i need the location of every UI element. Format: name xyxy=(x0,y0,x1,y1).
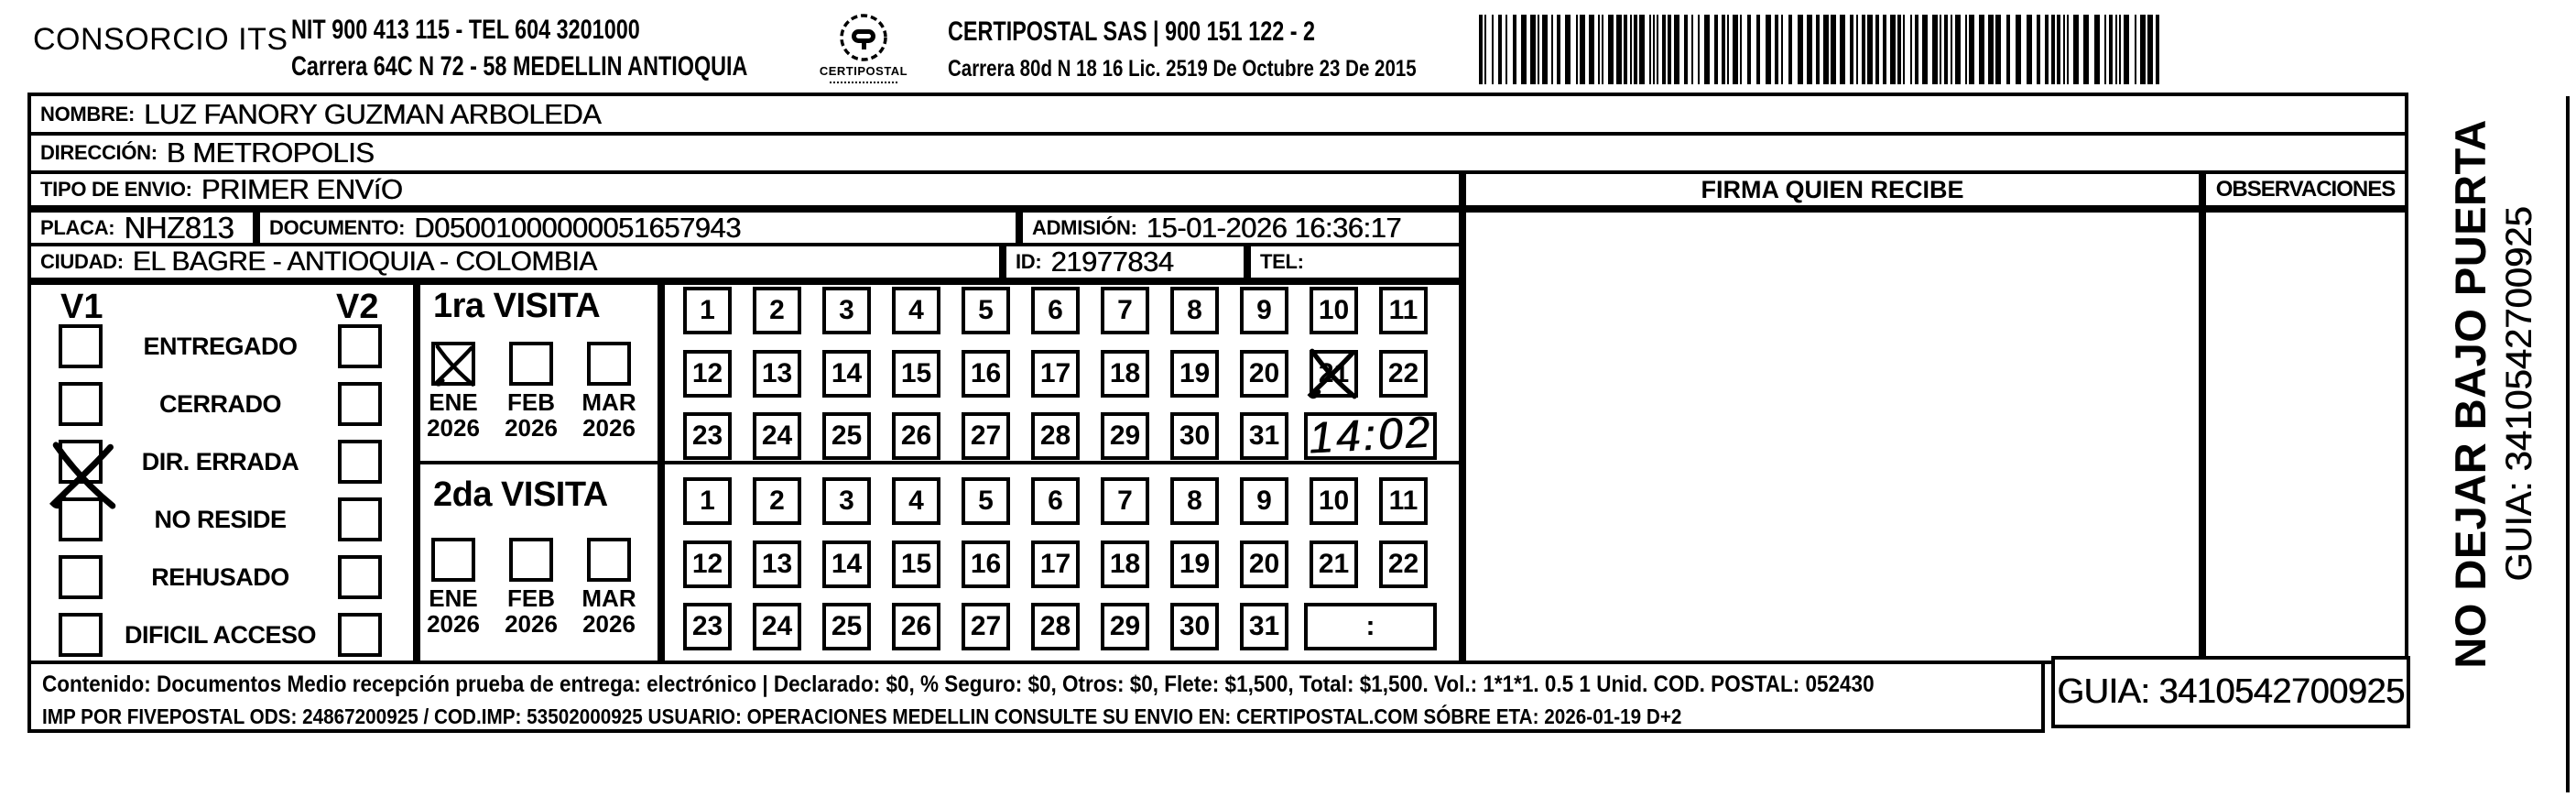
v1-checkbox xyxy=(59,555,103,599)
tel-cell: TEL: xyxy=(1247,243,1462,281)
certipostal-logo: CERTIPOSTAL xyxy=(813,11,914,83)
firma-body xyxy=(1462,209,2202,664)
barcode-bar xyxy=(1955,15,1961,84)
id-label: ID: xyxy=(1016,250,1041,274)
barcode-bar xyxy=(1639,15,1645,84)
day-cell: 4 xyxy=(892,287,940,334)
day-cell: 1 xyxy=(683,477,732,525)
guia-number: GUIA: 3410542700925 xyxy=(2057,672,2404,712)
admision-cell: ADMISIÓN: 15-01-2026 16:36:17 xyxy=(1019,209,1462,246)
visit-time-box: : xyxy=(1304,603,1437,650)
logo-tagline-rule xyxy=(830,79,897,83)
month-year: 2026 xyxy=(420,415,486,441)
day-cell: 7 xyxy=(1101,477,1149,525)
barcode-bar xyxy=(2067,15,2069,84)
handwritten-x-mark xyxy=(1306,346,1361,401)
barcode-bar xyxy=(1733,15,1738,84)
ciudad-cell: CIUDAD: EL BAGRE - ANTIOQUIA - COLOMBIA xyxy=(27,243,1003,281)
day-cell: 2 xyxy=(753,287,801,334)
status-option-label: NO RESIDE xyxy=(103,506,338,534)
barcode-bar xyxy=(1662,15,1666,84)
month-checkbox xyxy=(587,342,631,386)
guia-number-box: GUIA: 3410542700925 xyxy=(2051,656,2410,728)
barcode-bar xyxy=(1862,15,1865,84)
barcode-bar xyxy=(1557,15,1560,84)
month-year: 2026 xyxy=(420,611,486,637)
handwritten-x-mark xyxy=(432,343,478,388)
v2-checkbox xyxy=(338,555,382,599)
barcode-bar xyxy=(1657,15,1658,84)
barcode-bar xyxy=(1576,15,1578,84)
barcode-bar xyxy=(1756,15,1760,84)
day-cell: 19 xyxy=(1170,540,1219,588)
month-item: ENE2026 xyxy=(428,342,505,441)
barcode-bar xyxy=(1883,15,1886,84)
barcode-bar xyxy=(1831,15,1836,84)
status-row: REHUSADO xyxy=(59,555,382,599)
logo-wordmark: CERTIPOSTAL xyxy=(813,64,914,78)
barcode-bar xyxy=(1969,15,1974,84)
v1-column-header: V1 xyxy=(60,288,103,327)
day-cell: 31 xyxy=(1240,412,1288,460)
day-cell: 17 xyxy=(1031,350,1080,398)
placa-cell: PLACA: NHZ813 xyxy=(27,209,256,246)
month-year: 2026 xyxy=(498,415,564,441)
month-year: 2026 xyxy=(498,611,564,637)
month-label: FEB xyxy=(498,585,564,611)
day-cell: 3 xyxy=(822,477,871,525)
barcode-bar xyxy=(2119,15,2121,84)
barcode-bar xyxy=(1798,15,1803,84)
barcode-bar xyxy=(2027,15,2032,84)
day-cell: 12 xyxy=(683,350,732,398)
v1-checkbox xyxy=(59,613,103,657)
day-cell: 4 xyxy=(892,477,940,525)
barcode-bar xyxy=(1816,15,1820,84)
barcode-bar xyxy=(1704,15,1710,84)
firma-header: FIRMA QUIEN RECIBE xyxy=(1701,176,1963,204)
status-options-list: ENTREGADOCERRADODIR. ERRADANO RESIDEREHU… xyxy=(59,324,382,671)
barcode-bar xyxy=(2083,15,2089,84)
day-cell: 22 xyxy=(1379,540,1428,588)
barcode-bar xyxy=(1915,15,1918,84)
documento-cell: DOCUMENTO: D05001000000051657943 xyxy=(256,209,1019,246)
visit-time-box: 14:02 xyxy=(1304,412,1437,460)
day-cell: 28 xyxy=(1031,603,1080,650)
barcode-bar xyxy=(1979,15,1984,84)
barcode-bar xyxy=(1807,15,1812,84)
v2-checkbox xyxy=(338,382,382,426)
barcode-bar xyxy=(1722,15,1725,84)
day-cell: 25 xyxy=(822,603,871,650)
day-cell: 5 xyxy=(962,287,1010,334)
barcode-bar xyxy=(1624,15,1627,84)
company-address-line: Carrera 64C N 72 - 58 MEDELLIN ANTIOQUIA xyxy=(291,51,747,82)
barcode-bar xyxy=(2045,15,2049,84)
day-cell: 26 xyxy=(892,603,940,650)
day-cell: 12 xyxy=(683,540,732,588)
firma-header-cell: FIRMA QUIEN RECIBE xyxy=(1462,170,2202,209)
barcode-bar xyxy=(2037,15,2040,84)
day-cell: 7 xyxy=(1101,287,1149,334)
day-cell: 16 xyxy=(962,540,1010,588)
month-label: ENE xyxy=(420,585,486,611)
barcode-bar xyxy=(1747,15,1751,84)
barcode-bar xyxy=(1634,15,1637,84)
barcode-bar xyxy=(2124,15,2129,84)
nombre-value: LUZ FANORY GUZMAN ARBOLEDA xyxy=(144,98,601,131)
scan-edge-rule xyxy=(2566,96,2570,792)
status-row: ENTREGADO xyxy=(59,324,382,368)
barcode-bar xyxy=(1875,15,1879,84)
footer-import-line: IMP POR FIVEPOSTAL ODS: 24867200925 / CO… xyxy=(42,704,1842,729)
observaciones-header-cell: OBSERVACIONES xyxy=(2202,170,2408,209)
month-item: MAR2026 xyxy=(583,342,661,441)
status-option-label: DIFICIL ACCESO xyxy=(103,621,338,650)
direccion-label: DIRECCIÓN: xyxy=(40,141,158,165)
placa-label: PLACA: xyxy=(40,216,114,240)
day-cell: 24 xyxy=(753,603,801,650)
day-cell: 19 xyxy=(1170,350,1219,398)
status-row: DIFICIL ACCESO xyxy=(59,613,382,657)
barcode-bar xyxy=(1951,15,1952,84)
day-cell: 23 xyxy=(683,412,732,460)
status-option-label: ENTREGADO xyxy=(103,333,338,361)
admision-value: 15-01-2026 16:36:17 xyxy=(1147,212,1401,245)
barcode-bar xyxy=(2140,15,2146,84)
status-option-label: REHUSADO xyxy=(103,563,338,592)
day-cell: 31 xyxy=(1240,603,1288,650)
footer-content-line: Contenido: Documentos Medio recepción pr… xyxy=(42,672,1842,698)
barcode-bar xyxy=(1616,15,1622,84)
v2-checkbox xyxy=(338,440,382,484)
barcode-bar xyxy=(1542,15,1548,84)
month-checkbox xyxy=(587,538,631,582)
barcode-bar xyxy=(1988,15,1994,84)
barcode-bar xyxy=(1714,15,1718,84)
barcode-bar xyxy=(1823,15,1829,84)
side-guia-text: GUIA: 3410542700925 xyxy=(2499,119,2540,668)
barcode-bar xyxy=(2016,15,2021,84)
time-placeholder: : xyxy=(1366,611,1375,642)
day-cell: 13 xyxy=(753,540,801,588)
day-cell: 11 xyxy=(1379,287,1428,334)
v2-column-header: V2 xyxy=(336,288,378,327)
visit-split-rule xyxy=(417,461,1462,464)
day-cell: 10 xyxy=(1310,287,1358,334)
day-cell: 26 xyxy=(892,412,940,460)
barcode-bar xyxy=(1995,15,2001,84)
handwritten-time: 14:02 xyxy=(1308,414,1433,457)
day-cell: 14 xyxy=(822,540,871,588)
tipo-envio-value: PRIMER ENVíO xyxy=(201,173,403,206)
barcode-bar xyxy=(2057,15,2060,84)
footer-content-box: Contenido: Documentos Medio recepción pr… xyxy=(27,661,2045,733)
admision-label: ADMISIÓN: xyxy=(1032,216,1137,240)
status-row: CERRADO xyxy=(59,382,382,426)
day-cell: 17 xyxy=(1031,540,1080,588)
barcode-bar xyxy=(1775,15,1778,84)
barcode-bar xyxy=(2073,15,2079,84)
barcode-bar xyxy=(1940,15,1941,84)
barcode-bar xyxy=(1538,15,1539,84)
tel-label: TEL: xyxy=(1260,250,1304,274)
barcode-bar xyxy=(2104,15,2106,84)
day-cell: 2 xyxy=(753,477,801,525)
barcode-bar xyxy=(2063,15,2065,84)
barcode-bar xyxy=(1492,15,1494,84)
day-cell: 16 xyxy=(962,350,1010,398)
day-cell: 24 xyxy=(753,412,801,460)
day-cell: 15 xyxy=(892,350,940,398)
nombre-label: NOMBRE: xyxy=(40,103,135,126)
day-cell: 9 xyxy=(1240,287,1288,334)
barcode-bar xyxy=(1602,15,1603,84)
barcode-bar xyxy=(1788,15,1792,84)
v1-checkbox xyxy=(59,497,103,541)
month-checkbox xyxy=(431,538,475,582)
day-cell: 8 xyxy=(1170,477,1219,525)
visit-months-panel: 1ra VISITA ENE2026FEB2026MAR2026 2da VIS… xyxy=(417,281,661,664)
status-row: NO RESIDE xyxy=(59,497,382,541)
tipo-envio-label: TIPO DE ENVIO: xyxy=(40,178,192,202)
v2-checkbox xyxy=(338,613,382,657)
barcode-bar xyxy=(1530,15,1536,84)
barcode-bar xyxy=(1513,15,1516,84)
month-checkbox xyxy=(509,342,553,386)
day-cell: 29 xyxy=(1101,412,1149,460)
certipostal-logo-icon xyxy=(837,11,890,64)
day-cell: 18 xyxy=(1101,540,1149,588)
ciudad-label: CIUDAD: xyxy=(40,250,124,274)
documento-label: DOCUMENTO: xyxy=(269,216,405,240)
day-cell: 30 xyxy=(1170,412,1219,460)
v1-checkbox xyxy=(59,382,103,426)
day-cell: 9 xyxy=(1240,477,1288,525)
direccion-row: DIRECCIÓN: B METROPOLIS xyxy=(27,132,2408,174)
barcode-bar xyxy=(1649,15,1651,84)
day-cell: 18 xyxy=(1101,350,1149,398)
barcode-bar xyxy=(1922,15,1928,84)
barcode-bar xyxy=(1698,15,1700,84)
status-option-label: CERRADO xyxy=(103,390,338,419)
barcode-bar xyxy=(1740,15,1742,84)
day-cell: 20 xyxy=(1240,540,1288,588)
ciudad-value: EL BAGRE - ANTIOQUIA - COLOMBIA xyxy=(133,246,597,278)
documento-value: D05001000000051657943 xyxy=(414,212,741,245)
barcode-bar xyxy=(1598,15,1600,84)
barcode-bar xyxy=(1521,15,1527,84)
v1-checkbox xyxy=(59,440,103,484)
day-cell: 13 xyxy=(753,350,801,398)
v2-checkbox xyxy=(338,324,382,368)
month-item: MAR2026 xyxy=(583,538,661,637)
shipping-label-sheet: CONSORCIO ITS NIT 900 413 115 - TEL 604 … xyxy=(0,0,2576,808)
barcode-bar xyxy=(1498,15,1502,84)
v2-checkbox xyxy=(338,497,382,541)
month-checkbox xyxy=(509,538,553,582)
barcode-bar xyxy=(1565,15,1571,84)
month-item: ENE2026 xyxy=(428,538,505,637)
day-cell: 30 xyxy=(1170,603,1219,650)
month-year: 2026 xyxy=(576,611,642,637)
day-cell: 21 xyxy=(1310,350,1358,398)
barcode-bar xyxy=(2156,15,2159,84)
month-item: FEB2026 xyxy=(505,538,583,637)
barcode-bar xyxy=(1505,15,1507,84)
visit1-months: ENE2026FEB2026MAR2026 xyxy=(428,342,661,441)
barcode-bar xyxy=(2006,15,2010,84)
day-cell: 8 xyxy=(1170,287,1219,334)
day-cell: 27 xyxy=(962,603,1010,650)
month-label: MAR xyxy=(576,585,642,611)
visit2-months: ENE2026FEB2026MAR2026 xyxy=(428,538,661,637)
day-cell: 29 xyxy=(1101,603,1149,650)
month-label: MAR xyxy=(576,389,642,415)
barcode-bar xyxy=(1684,15,1688,84)
barcode-bar xyxy=(1580,15,1585,84)
barcode-bar xyxy=(1674,15,1679,84)
barcode-bar xyxy=(1479,15,1483,84)
delivery-status-panel: V1 V2 ENTREGADOCERRADODIR. ERRADANO RESI… xyxy=(27,281,417,664)
barcode-bar xyxy=(2094,15,2100,84)
barcode-bar xyxy=(1850,15,1853,84)
company-nit-line: NIT 900 413 115 - TEL 604 3201000 xyxy=(291,15,747,46)
day-cell: 6 xyxy=(1031,477,1080,525)
barcode-bar xyxy=(1840,15,1845,84)
day-cell: 22 xyxy=(1379,350,1428,398)
side-warning-text: NO DEJAR BAJO PUERTA xyxy=(2445,119,2495,668)
company-name: CONSORCIO ITS xyxy=(33,22,288,58)
day-cell: 21 xyxy=(1310,540,1358,588)
day-cell: 1 xyxy=(683,287,732,334)
barcode-bar xyxy=(1856,15,1858,84)
barcode-bar xyxy=(2051,15,2055,84)
barcode-bar xyxy=(1903,15,1905,84)
barcode-bar xyxy=(1897,15,1901,84)
barcode-bar xyxy=(1910,15,1912,84)
partner-license-line: Carrera 80d N 18 16 Lic. 2519 De Octubre… xyxy=(948,56,1417,82)
barcode-bar xyxy=(1691,15,1693,84)
id-value: 21977834 xyxy=(1050,246,1173,278)
barcode-bar xyxy=(1965,15,1967,84)
visit-day-grids: 1234567891011121314151617181920212223242… xyxy=(661,281,1462,664)
day-cell: 15 xyxy=(892,540,940,588)
barcode-bar xyxy=(1890,15,1896,84)
side-label: NO DEJAR BAJO PUERTA GUIA: 3410542700925 xyxy=(2445,119,2540,668)
barcode-bar xyxy=(2135,15,2136,84)
barcode-bar xyxy=(1766,15,1771,84)
day-cell: 27 xyxy=(962,412,1010,460)
month-item: FEB2026 xyxy=(505,342,583,441)
observaciones-body xyxy=(2202,209,2408,664)
partner-name-line: CERTIPOSTAL SAS | 900 151 122 - 2 xyxy=(948,16,1394,48)
barcode-bar xyxy=(2115,15,2117,84)
barcode-bar xyxy=(1781,15,1783,84)
barcode-bar xyxy=(1932,15,1938,84)
observaciones-header: OBSERVACIONES xyxy=(2216,177,2396,202)
day-cell: 14 xyxy=(822,350,871,398)
barcode-bar xyxy=(2147,15,2153,84)
status-option-label: DIR. ERRADA xyxy=(103,448,338,476)
v1-checkbox xyxy=(59,324,103,368)
status-row: DIR. ERRADA xyxy=(59,440,382,484)
direccion-value: B METROPOLIS xyxy=(167,136,375,169)
barcode-bar xyxy=(1484,15,1486,84)
barcode-bar xyxy=(1668,15,1671,84)
barcode-bar xyxy=(1630,15,1632,84)
day-cell: 25 xyxy=(822,412,871,460)
tracking-barcode xyxy=(1479,15,2164,84)
id-cell: ID: 21977834 xyxy=(1003,243,1247,281)
barcode-bar xyxy=(1867,15,1873,84)
day-cell: 23 xyxy=(683,603,732,650)
placa-value: NHZ813 xyxy=(124,211,234,246)
barcode-bar xyxy=(1727,15,1729,84)
day-cell: 28 xyxy=(1031,412,1080,460)
day-cell: 10 xyxy=(1310,477,1358,525)
tipo-envio-cell: TIPO DE ENVIO: PRIMER ENVíO xyxy=(27,170,1462,209)
visit2-title: 2da VISITA xyxy=(433,475,608,515)
day-cell: 20 xyxy=(1240,350,1288,398)
barcode-bar xyxy=(2109,15,2113,84)
day-cell: 3 xyxy=(822,287,871,334)
day-cell: 5 xyxy=(962,477,1010,525)
barcode-bar xyxy=(1589,15,1594,84)
month-label: FEB xyxy=(498,389,564,415)
barcode-bar xyxy=(1944,15,1948,84)
barcode-bar xyxy=(1551,15,1553,84)
nombre-row: NOMBRE: LUZ FANORY GUZMAN ARBOLEDA xyxy=(27,93,2408,136)
day-cell: 11 xyxy=(1379,477,1428,525)
month-year: 2026 xyxy=(576,415,642,441)
barcode-bar xyxy=(1608,15,1614,84)
day-cell: 6 xyxy=(1031,287,1080,334)
month-checkbox xyxy=(431,342,475,386)
barcode-bar xyxy=(1653,15,1655,84)
month-label: ENE xyxy=(420,389,486,415)
visit1-title: 1ra VISITA xyxy=(433,287,600,326)
